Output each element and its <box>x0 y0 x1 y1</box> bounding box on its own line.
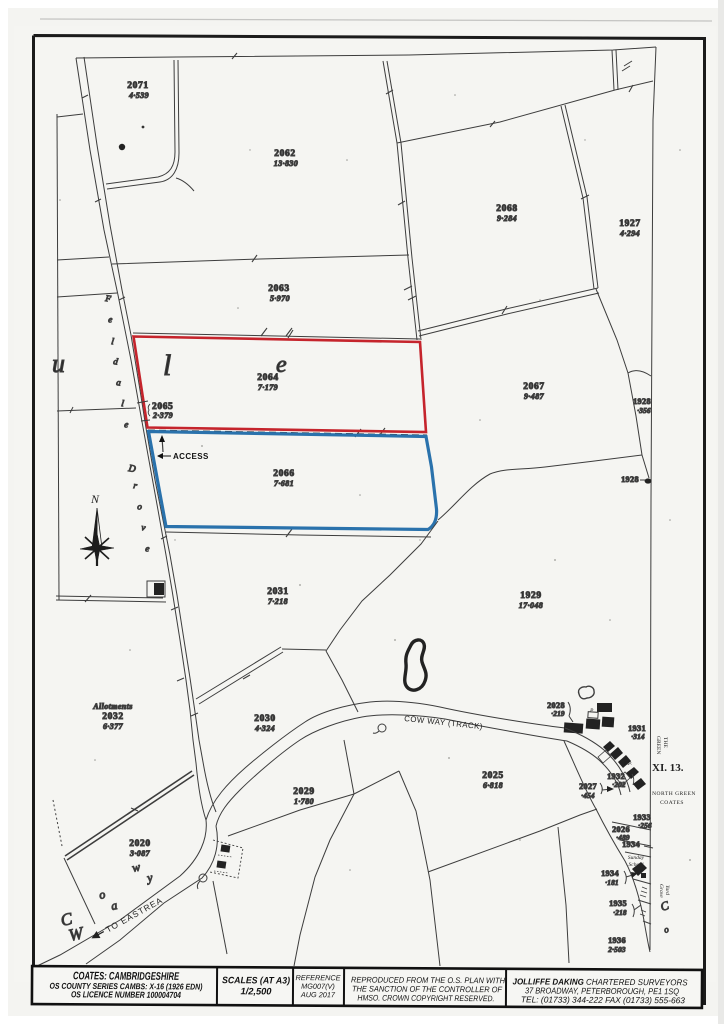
svg-text:SCALES (AT A3): SCALES (AT A3) <box>222 975 290 985</box>
svg-text:1/2,500: 1/2,500 <box>240 986 272 996</box>
svg-text:3·087: 3·087 <box>129 849 151 858</box>
svg-text:17·048: 17·048 <box>519 601 543 610</box>
svg-text:Sunday: Sunday <box>628 855 645 861</box>
svg-text:·454: ·454 <box>581 791 595 800</box>
svg-text:F.P.: F.P. <box>623 761 632 767</box>
svg-text:Allotments: Allotments <box>92 702 133 711</box>
svg-text:1927: 1927 <box>619 219 640 229</box>
svg-text:1935: 1935 <box>609 899 627 908</box>
svg-text:5·970: 5·970 <box>270 294 290 303</box>
svg-text:COATES: COATES <box>660 800 684 806</box>
svg-text:6·377: 6·377 <box>103 722 124 731</box>
svg-text:·181: ·181 <box>605 878 619 887</box>
svg-text:2071: 2071 <box>127 81 148 91</box>
svg-text:1936: 1936 <box>608 936 626 945</box>
svg-text:u: u <box>52 349 65 378</box>
svg-text:7·179: 7·179 <box>258 383 278 392</box>
svg-text:2·503: 2·503 <box>607 945 626 954</box>
svg-text:Grave: Grave <box>658 884 664 898</box>
svg-text:4·324: 4·324 <box>254 724 275 733</box>
svg-text:4·539: 4·539 <box>128 91 149 100</box>
svg-text:2027: 2027 <box>579 782 597 791</box>
svg-text:ACCESS: ACCESS <box>173 452 209 461</box>
svg-text:HMSO. CROWN COPYRIGHT RESERVED: HMSO. CROWN COPYRIGHT RESERVED. <box>357 993 494 1003</box>
svg-text:NORTH GREEN: NORTH GREEN <box>652 791 696 797</box>
svg-text:·356: ·356 <box>637 406 651 415</box>
svg-text:·256: ·256 <box>638 821 652 830</box>
svg-text:·202: ·202 <box>612 780 626 789</box>
svg-text:2063: 2063 <box>268 284 289 294</box>
svg-text:2025: 2025 <box>482 771 503 781</box>
svg-text:2066: 2066 <box>273 469 294 479</box>
svg-text:2029: 2029 <box>293 787 314 797</box>
svg-text:2062: 2062 <box>274 149 295 159</box>
svg-text:GREEN: GREEN <box>655 736 661 754</box>
svg-text:2·379: 2·379 <box>152 411 173 420</box>
svg-text:THE: THE <box>662 737 668 748</box>
svg-text:2020: 2020 <box>129 839 150 849</box>
svg-text:TEL: (01733) 344-222 FAX (017: TEL: (01733) 344-222 FAX (01733) 555-663 <box>521 994 685 1005</box>
svg-text:1929: 1929 <box>520 591 541 601</box>
svg-text:Yard: Yard <box>664 885 670 895</box>
svg-text:·218: ·218 <box>613 908 627 917</box>
svg-text:2064: 2064 <box>257 373 278 383</box>
svg-text:2030: 2030 <box>254 714 275 724</box>
svg-text:9·284: 9·284 <box>497 214 517 223</box>
svg-text:7·681: 7·681 <box>274 479 294 488</box>
svg-text:1·780: 1·780 <box>294 797 314 806</box>
svg-text:·219: ·219 <box>551 709 565 718</box>
svg-text:AUG 2017: AUG 2017 <box>300 990 336 999</box>
svg-text:l: l <box>163 349 171 382</box>
svg-text:1934: 1934 <box>622 840 640 849</box>
svg-text:7·218: 7·218 <box>268 597 288 606</box>
svg-text:4·294: 4·294 <box>619 229 640 238</box>
svg-text:2031: 2031 <box>267 587 288 597</box>
svg-text:P: P <box>589 708 594 714</box>
svg-text:OS LICENCE NUMBER 100004704: OS LICENCE NUMBER 100004704 <box>71 989 181 1000</box>
svg-text:1928: 1928 <box>621 475 639 484</box>
svg-text:2068: 2068 <box>496 204 517 214</box>
svg-text:2067: 2067 <box>523 382 544 392</box>
svg-text:9·487: 9·487 <box>524 392 545 401</box>
svg-text:13·830: 13·830 <box>274 159 298 168</box>
svg-text:·314: ·314 <box>631 732 645 741</box>
svg-text:1928: 1928 <box>633 397 651 406</box>
svg-text:N: N <box>90 492 100 506</box>
svg-text:XI. 13.: XI. 13. <box>652 762 684 774</box>
svg-text:2032: 2032 <box>102 712 123 722</box>
svg-text:6·818: 6·818 <box>483 781 503 790</box>
svg-text:1934: 1934 <box>601 869 619 878</box>
